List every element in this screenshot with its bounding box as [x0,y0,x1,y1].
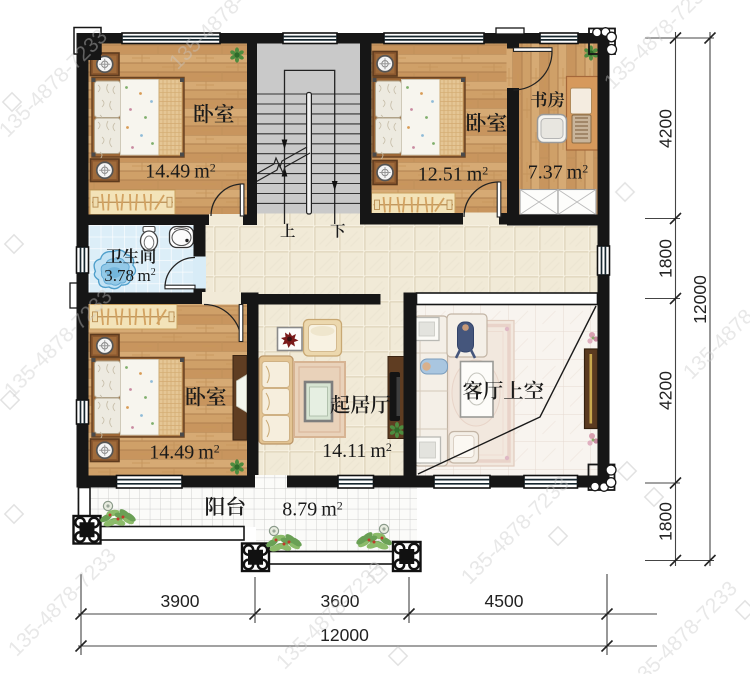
svg-text:14.11 m2: 14.11 m2 [322,440,392,462]
svg-text:3.78 m2: 3.78 m2 [104,266,155,285]
svg-text:8.79 m2: 8.79 m2 [282,499,343,521]
svg-text:1800: 1800 [656,239,676,278]
svg-text:1800: 1800 [656,502,676,541]
svg-text:4200: 4200 [656,109,676,148]
svg-text:7.37 m2: 7.37 m2 [528,162,589,184]
svg-text:12000: 12000 [690,275,710,324]
svg-text:14.49 m2: 14.49 m2 [149,442,220,464]
svg-text:4500: 4500 [485,591,524,611]
svg-text:4200: 4200 [656,371,676,410]
svg-text:14.49 m2: 14.49 m2 [145,161,216,183]
svg-text:3900: 3900 [161,591,200,611]
svg-text:12.51 m2: 12.51 m2 [418,164,489,186]
